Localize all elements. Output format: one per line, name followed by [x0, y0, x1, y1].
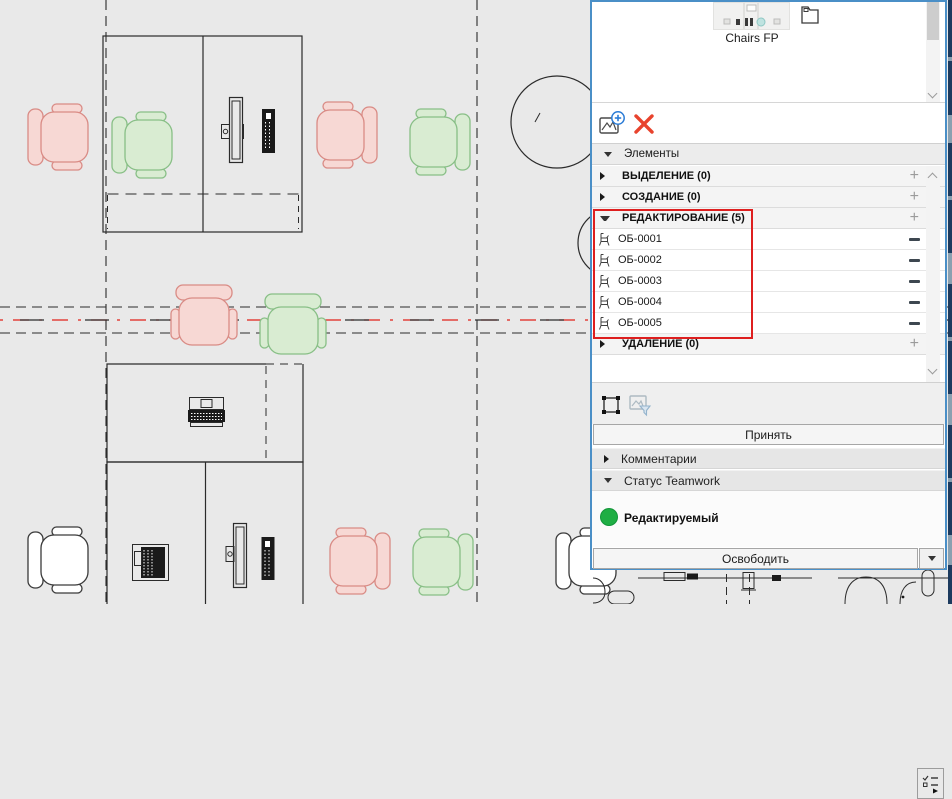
collapse-triangle-icon[interactable] — [604, 152, 612, 157]
chair-white-bottom-left[interactable] — [28, 527, 88, 593]
comments-section-header[interactable]: Комментарии — [592, 448, 945, 469]
group-label: УДАЛЕНИЕ (0) — [622, 338, 699, 350]
group-creation[interactable]: СОЗДАНИЕ (0) + — [592, 187, 945, 208]
chair-item-icon — [597, 231, 611, 247]
chevron-up-icon[interactable] — [928, 173, 938, 183]
list-item[interactable]: ОБ-0005 — [592, 313, 945, 334]
chair-item-icon — [597, 315, 611, 331]
remove-item-button[interactable] — [909, 280, 920, 283]
keyboard-symbol-bottom[interactable] — [262, 537, 275, 580]
chair-item-icon — [597, 294, 611, 310]
group-deletion[interactable]: УДАЛЕНИЕ (0) + — [592, 334, 945, 355]
chair-green-center[interactable] — [260, 294, 326, 354]
status-zone: Редактируемый — [592, 491, 945, 547]
chair-item-icon — [597, 252, 611, 268]
list-item[interactable]: ОБ-0003 — [592, 271, 945, 292]
chair-pink-top-right[interactable] — [317, 102, 377, 168]
expand-triangle-icon[interactable] — [600, 340, 610, 348]
elements-header-label: Элементы — [624, 148, 679, 160]
chair-green-top-right[interactable] — [410, 109, 470, 175]
palette-toolbar — [592, 103, 945, 143]
chevron-down-icon[interactable] — [928, 365, 938, 375]
remove-item-button[interactable] — [909, 301, 920, 304]
expand-triangle-icon[interactable] — [600, 172, 610, 180]
chair-green-desk[interactable] — [112, 112, 172, 178]
thumbnail-image — [714, 3, 789, 29]
actions-toolbar — [592, 382, 945, 424]
group-editing[interactable]: РЕДАКТИРОВАНИЕ (5) + — [592, 208, 945, 229]
preview-scrollbar[interactable] — [926, 2, 940, 102]
library-part-name: Chairs FP — [688, 31, 816, 45]
remove-item-button[interactable] — [909, 322, 920, 325]
add-to-group-button[interactable]: + — [910, 210, 919, 226]
image-filter-icon — [629, 393, 653, 417]
laptop-symbol-middle[interactable] — [188, 398, 225, 427]
comments-label: Комментарии — [621, 452, 697, 466]
remove-item-button[interactable] — [909, 259, 920, 262]
group-label: ВЫДЕЛЕНИЕ (0) — [622, 170, 711, 182]
plan-fragments-bottom — [593, 570, 948, 604]
chair-item-icon — [597, 273, 611, 289]
list-item[interactable]: ОБ-0004 — [592, 292, 945, 313]
laptop-symbol-bottom[interactable] — [133, 545, 169, 581]
folder-icon[interactable] — [800, 4, 820, 25]
teamwork-status-label: Статус Teamwork — [624, 474, 720, 488]
add-to-group-button[interactable]: + — [910, 168, 919, 184]
expand-triangle-icon[interactable] — [604, 455, 609, 463]
list-item[interactable]: ОБ-0001 — [592, 229, 945, 250]
list-item[interactable]: ОБ-0002 — [592, 250, 945, 271]
chevron-down-icon — [928, 556, 936, 561]
library-preview-area: Chairs FP — [592, 2, 945, 102]
marquee-icon[interactable] — [601, 395, 621, 415]
list-scrollbar[interactable] — [926, 166, 940, 382]
accept-button[interactable]: Принять — [593, 424, 944, 445]
expand-triangle-icon[interactable] — [600, 193, 610, 201]
collapse-triangle-icon[interactable] — [604, 478, 612, 483]
elements-header[interactable]: Элементы — [592, 143, 945, 165]
monitor-symbol-bottom[interactable] — [226, 524, 247, 588]
add-to-group-button[interactable]: + — [910, 336, 919, 352]
status-green-dot — [600, 508, 618, 526]
teamwork-status-section-header[interactable]: Статус Teamwork — [592, 470, 945, 491]
group-label: РЕДАКТИРОВАНИЕ (5) — [622, 212, 745, 224]
item-label: ОБ-0003 — [618, 275, 662, 287]
chair-symbols — [28, 102, 616, 595]
release-button[interactable]: Освободить — [593, 548, 918, 569]
add-to-group-button[interactable]: + — [910, 189, 919, 205]
desk-bottom[interactable] — [107, 462, 303, 604]
add-element-icon[interactable] — [598, 110, 626, 138]
release-dropdown-button[interactable] — [919, 548, 944, 569]
delete-element-icon[interactable] — [632, 112, 656, 136]
checklist-with-arrow-icon — [921, 773, 940, 794]
list-options-button[interactable] — [917, 768, 944, 799]
item-label: ОБ-0005 — [618, 317, 662, 329]
collapse-triangle-icon[interactable] — [600, 216, 610, 221]
teamwork-palette: Chairs FP Элементы ВЫДЕЛЕНИЕ (0) — [590, 0, 947, 570]
item-label: ОБ-0004 — [618, 296, 662, 308]
remove-item-button[interactable] — [909, 238, 920, 241]
monitor-symbol-top[interactable] — [222, 98, 244, 163]
item-label: ОБ-0002 — [618, 254, 662, 266]
scrollbar-thumb[interactable] — [927, 2, 939, 40]
chair-green-bottom[interactable] — [413, 529, 473, 595]
keyboard-symbol-top[interactable] — [262, 109, 275, 153]
chair-pink-center[interactable] — [171, 285, 237, 345]
chevron-down-icon[interactable] — [928, 89, 938, 99]
library-part-thumbnail[interactable] — [713, 2, 790, 30]
group-label: СОЗДАНИЕ (0) — [622, 191, 701, 203]
group-selection[interactable]: ВЫДЕЛЕНИЕ (0) + — [592, 166, 945, 187]
item-label: ОБ-0001 — [618, 233, 662, 245]
side-tab-strip[interactable] — [948, 0, 952, 604]
chair-pink-top-left[interactable] — [28, 104, 88, 170]
status-value: Редактируемый — [624, 511, 719, 525]
chair-pink-bottom[interactable] — [330, 528, 390, 594]
